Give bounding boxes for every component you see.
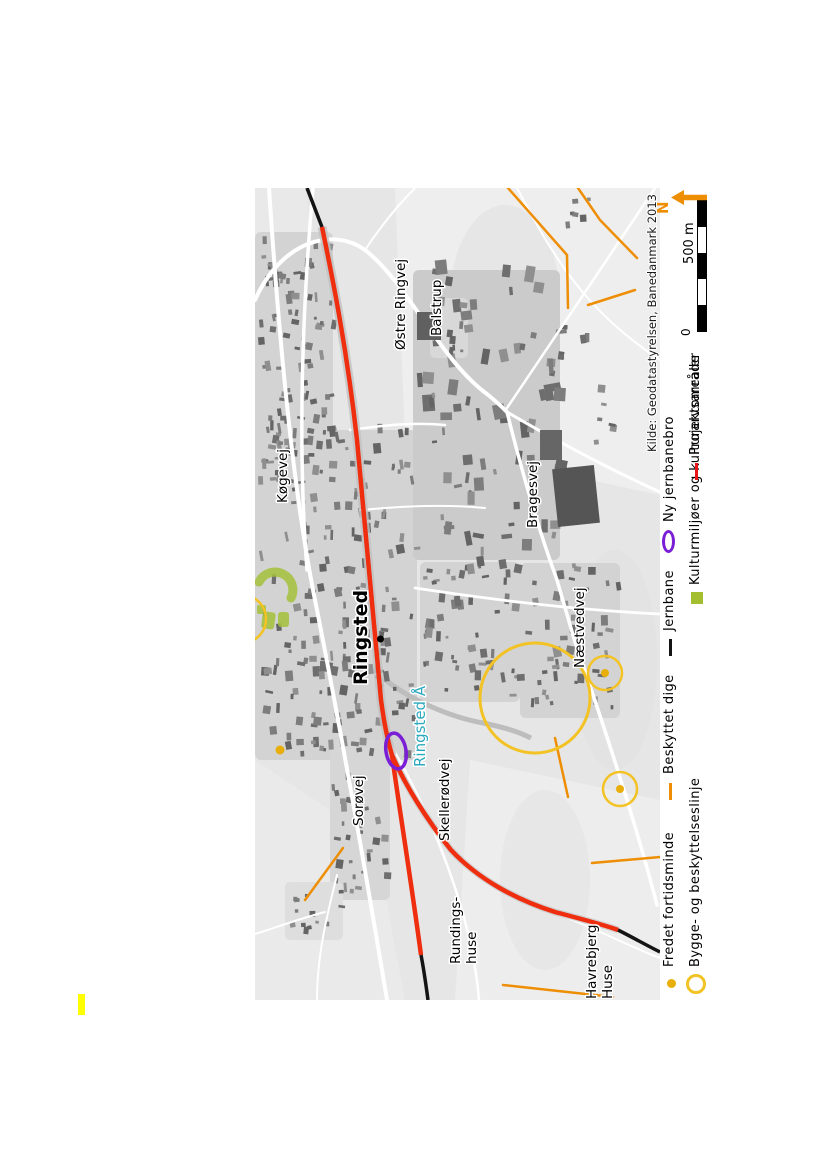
map-canvas: Østre Ringvej Balstrup Køgevej Bragesvej…	[255, 188, 660, 1000]
document-page: Østre Ringvej Balstrup Køgevej Bragesvej…	[0, 0, 827, 1169]
map-label-kogevej: Køgevej	[275, 449, 291, 503]
scalebar-segment	[698, 227, 706, 253]
page-highlight-mark	[78, 994, 85, 1015]
projektomrade-dash-icon	[695, 463, 698, 480]
byggelinje-circle-icon	[686, 974, 706, 994]
map-label-sorovej: Sorøvej	[351, 775, 367, 826]
scalebar-segment	[698, 279, 706, 305]
map-label-havrebjerg-2: Huse	[600, 965, 616, 999]
map-label-ringsted: Ringsted	[350, 590, 372, 685]
map-label-ostre-ringvej: Østre Ringvej	[393, 259, 409, 350]
map-label-rundingshuse-2: huse	[464, 932, 480, 964]
north-arrow-icon	[671, 190, 707, 205]
map-label-naestvedvej: Næstvedvej	[572, 587, 588, 668]
source-credit: Kilde: Geodatastyrelsen, Banedanmark 201…	[645, 194, 659, 452]
north-label: N	[654, 201, 672, 214]
jernbanebro-ellipse-icon	[662, 530, 675, 553]
legend-label-projektomrade: Projektområde	[688, 355, 703, 455]
map-label-havrebjerg-1: Havrebjerg	[584, 925, 600, 999]
rotated-map-figure: Østre Ringvej Balstrup Køgevej Bragesvej…	[255, 188, 715, 1000]
station-dot	[377, 636, 384, 643]
legend-label-fredet-fortidsminde: Fredet fortidsminde	[662, 832, 677, 967]
scalebar-max-label: 500 m	[682, 222, 697, 264]
legend-label-jernbane: Jernbane	[662, 570, 677, 631]
fortidsminde-dot-icon	[667, 979, 676, 988]
jernbane-dash-icon	[669, 639, 672, 656]
dige-dash-icon	[669, 783, 672, 800]
scalebar	[697, 200, 707, 332]
scalebar-zero-label: 0	[679, 328, 693, 336]
map-label-bragesvej: Bragesvej	[525, 461, 541, 528]
scalebar-segment	[698, 253, 706, 279]
map-label-rundingshuse-1: Rundings-	[448, 897, 464, 964]
map-label-skellerodvej: Skellerødvej	[437, 759, 453, 841]
map-label-ringsted-a: Ringsted Å	[410, 685, 429, 767]
scalebar-segment	[698, 305, 706, 331]
map-label-balstrup: Balstrup	[429, 280, 445, 336]
legend-label-ny-jernbanebro: Ny jernbanebro	[662, 416, 677, 522]
legend-label-beskyttet-dige: Beskyttet dige	[662, 674, 677, 774]
kulturmiljo-square-icon	[691, 592, 703, 604]
legend-label-byggelinje: Bygge- og beskyttelseslinje	[688, 778, 703, 967]
